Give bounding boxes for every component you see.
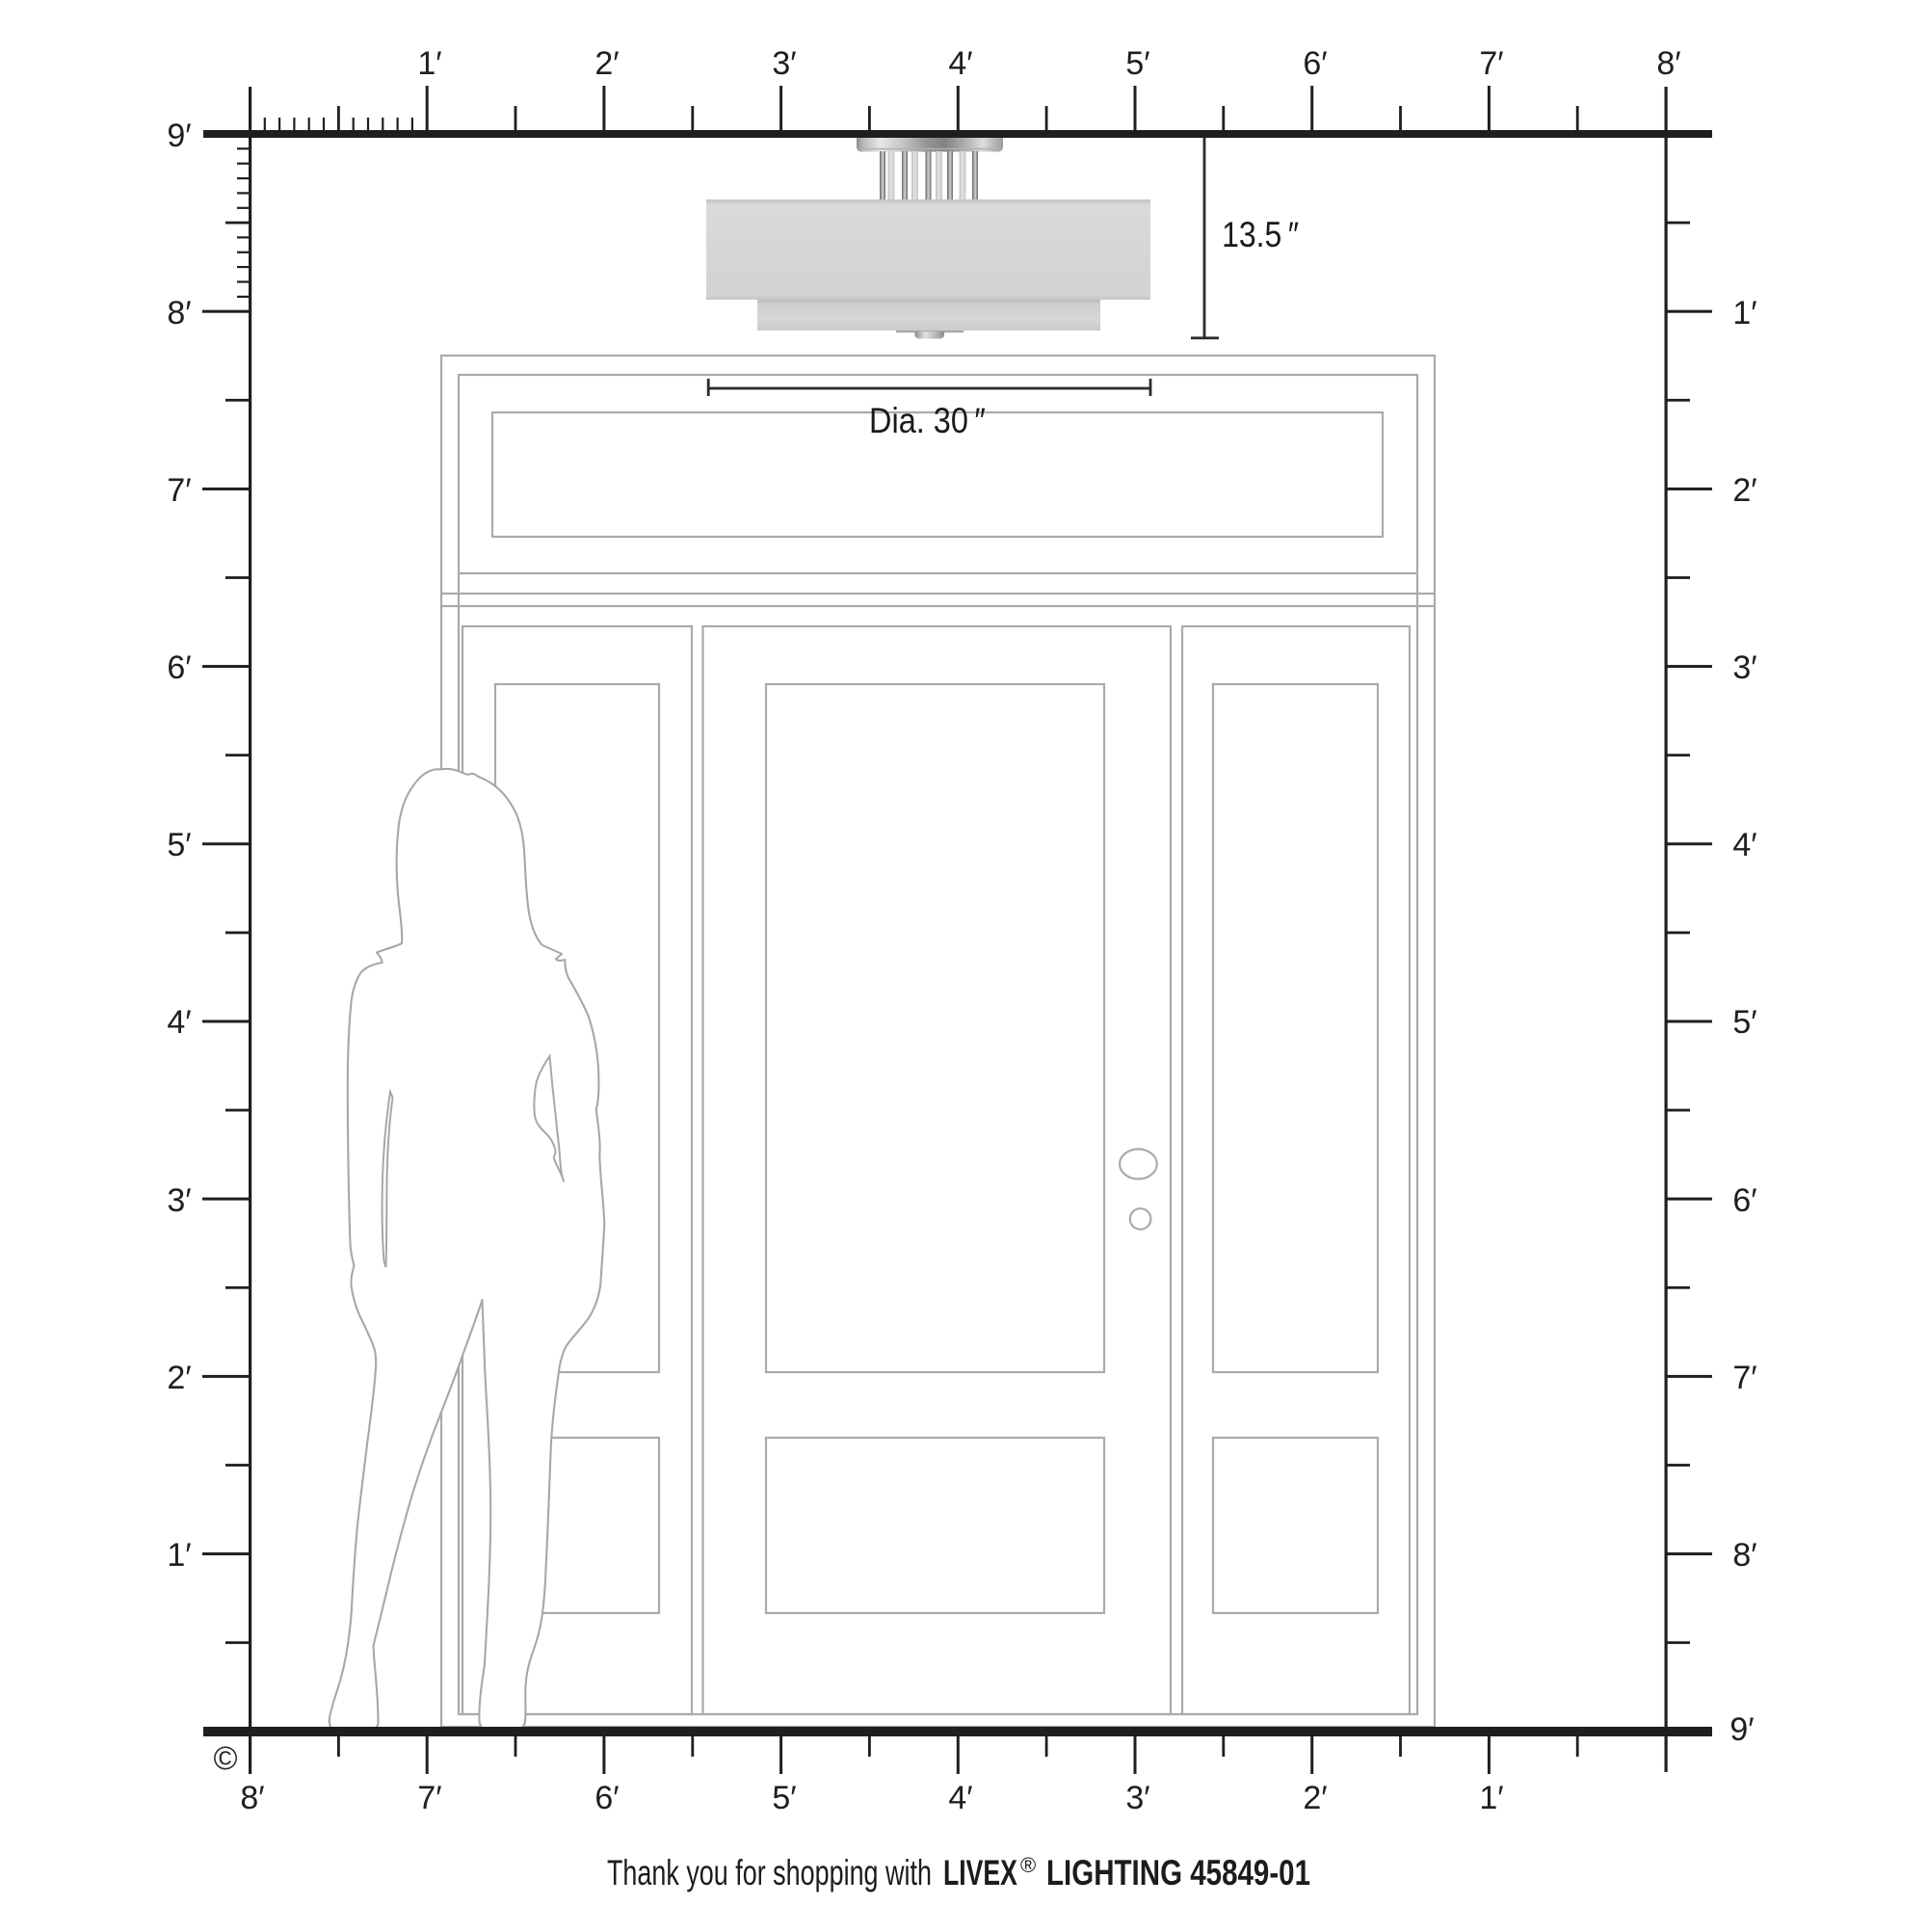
svg-text:5′: 5′	[167, 827, 191, 863]
svg-text:9′: 9′	[1729, 1711, 1754, 1748]
svg-text:5′: 5′	[772, 1780, 796, 1816]
svg-text:8′: 8′	[1732, 1537, 1756, 1574]
svg-text:1′: 1′	[417, 45, 441, 82]
svg-text:7′: 7′	[1479, 45, 1503, 82]
svg-text:2′: 2′	[1303, 1780, 1327, 1816]
svg-text:2′: 2′	[1732, 472, 1756, 509]
svg-text:6′: 6′	[1732, 1182, 1756, 1219]
svg-text:2′: 2′	[167, 1360, 191, 1396]
svg-text:4′: 4′	[948, 1780, 972, 1816]
svg-text:7′: 7′	[417, 1780, 441, 1816]
svg-text:6′: 6′	[167, 649, 191, 686]
svg-text:3′: 3′	[1125, 1780, 1149, 1816]
svg-text:4′: 4′	[948, 45, 972, 82]
svg-text:1′: 1′	[167, 1537, 191, 1574]
svg-text:4′: 4′	[1732, 827, 1756, 863]
svg-text:LIGHTING 45849-01: LIGHTING 45849-01	[1046, 1854, 1310, 1893]
svg-text:®: ®	[1020, 1853, 1036, 1877]
svg-text:6′: 6′	[1303, 45, 1327, 82]
svg-text:13.5 ″: 13.5 ″	[1222, 216, 1299, 255]
svg-text:Thank you for shopping with: Thank you for shopping with	[607, 1853, 932, 1892]
svg-text:3′: 3′	[167, 1182, 191, 1219]
svg-text:8′: 8′	[167, 295, 191, 331]
svg-text:9′: 9′	[167, 118, 191, 154]
svg-text:7′: 7′	[167, 472, 191, 509]
svg-text:3′: 3′	[772, 45, 796, 82]
svg-text:5′: 5′	[1125, 45, 1149, 82]
svg-text:1′: 1′	[1732, 295, 1756, 331]
svg-text:7′: 7′	[1732, 1360, 1756, 1396]
svg-text:3′: 3′	[1732, 649, 1756, 686]
svg-text:©: ©	[213, 1740, 237, 1777]
svg-text:Dia. 30 ″: Dia. 30 ″	[869, 401, 986, 440]
svg-text:6′: 6′	[594, 1780, 619, 1816]
svg-text:2′: 2′	[594, 45, 619, 82]
svg-text:5′: 5′	[1732, 1004, 1756, 1041]
svg-text:8′: 8′	[1656, 45, 1680, 82]
svg-text:8′: 8′	[240, 1780, 264, 1816]
svg-text:4′: 4′	[167, 1004, 191, 1041]
svg-text:1′: 1′	[1479, 1780, 1503, 1816]
svg-text:LIVEX: LIVEX	[943, 1853, 1017, 1892]
